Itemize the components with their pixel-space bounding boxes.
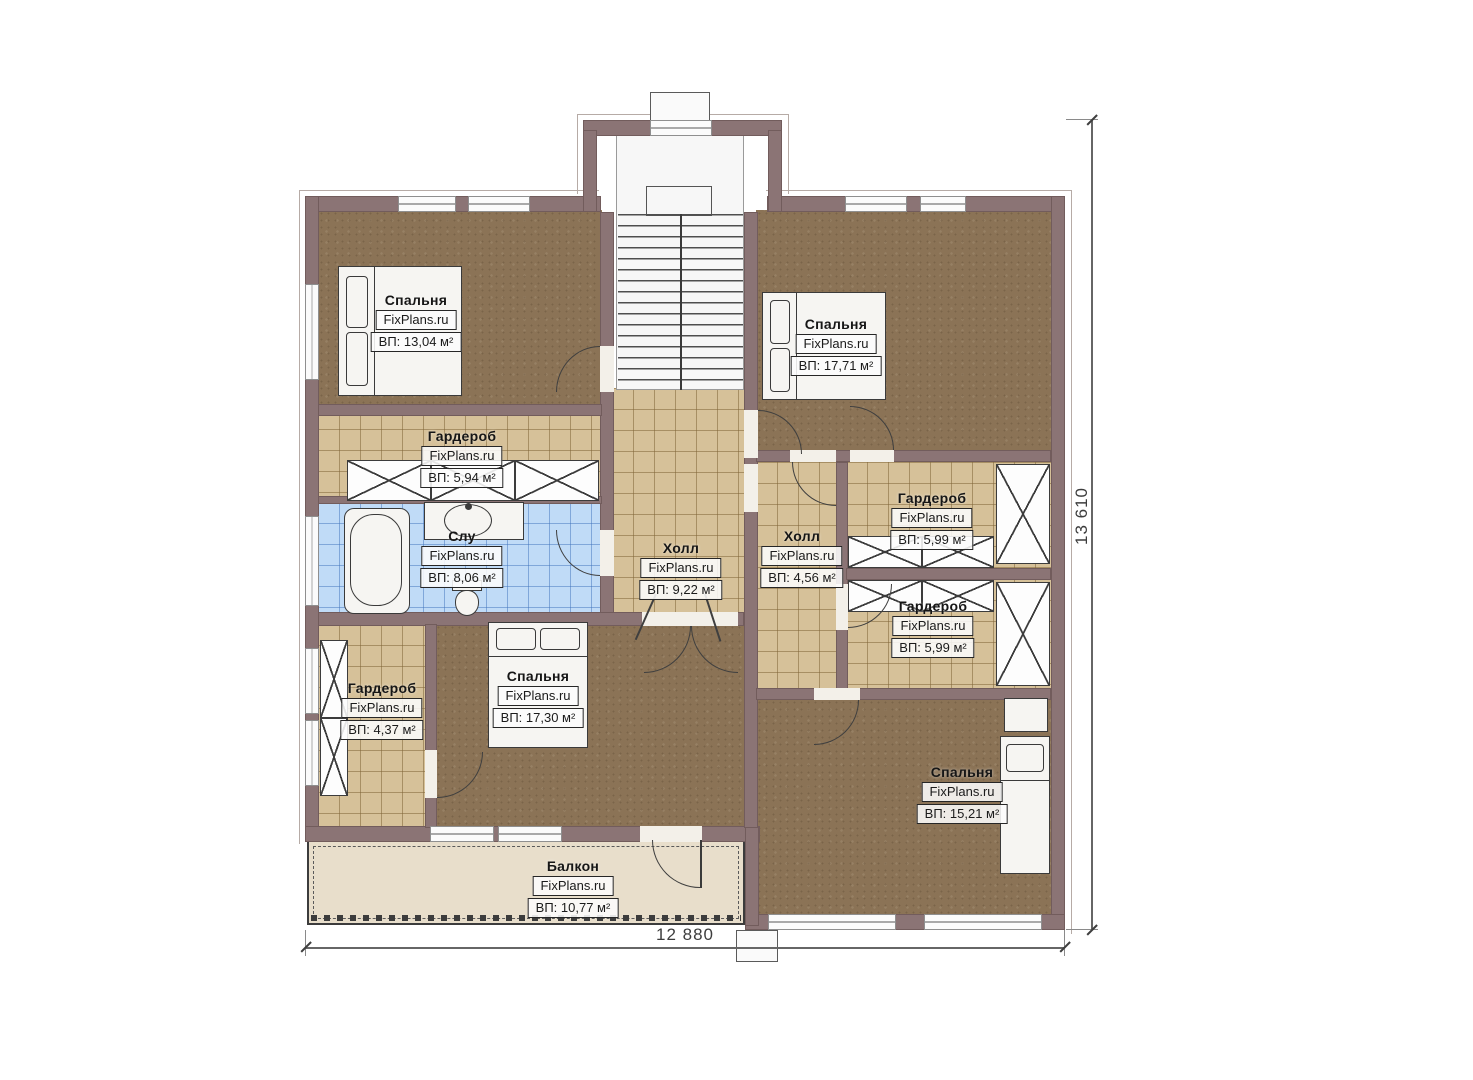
room-label-wardrobe-left: Гардероб FixPlans.ru ВП: 5,94 м²	[420, 428, 503, 488]
door-opening	[814, 688, 860, 700]
stair-treads-right	[682, 214, 743, 390]
brand-watermark: FixPlans.ru	[891, 508, 972, 528]
dimension-label-bottom: 12 880	[305, 925, 1065, 945]
room-name: Балкон	[547, 858, 599, 874]
wall	[767, 196, 1065, 212]
door-opening	[600, 346, 614, 392]
room-area: ВП: 5,94 м²	[420, 468, 503, 488]
closet	[996, 464, 1050, 564]
brand-watermark: FixPlans.ru	[892, 616, 973, 636]
wall	[846, 568, 1051, 580]
room-bedroom-bottom-center-floor	[435, 624, 746, 828]
closet	[347, 460, 431, 501]
room-area: ВП: 13,04 м²	[371, 332, 462, 352]
room-label-bedroom-top-left: Спальня FixPlans.ru ВП: 13,04 м²	[371, 292, 462, 352]
window	[920, 196, 966, 212]
window	[498, 826, 562, 842]
room-label-balcony: Балкон FixPlans.ru ВП: 10,77 м²	[528, 858, 619, 918]
sink-faucet	[465, 503, 472, 510]
room-label-hall-center: Холл FixPlans.ru ВП: 9,22 м²	[639, 540, 722, 600]
window	[305, 720, 319, 786]
dimension-label-right: 13 610	[1072, 476, 1092, 556]
room-label-wardrobe-right-lower: Гардероб FixPlans.ru ВП: 5,99 м²	[891, 598, 974, 658]
door-leaf	[700, 840, 702, 888]
room-name: Гардероб	[428, 428, 497, 444]
brand-watermark: FixPlans.ru	[532, 876, 613, 896]
window	[468, 196, 530, 212]
room-name: Спальня	[385, 292, 448, 308]
brand-watermark: FixPlans.ru	[341, 698, 422, 718]
window	[398, 196, 456, 212]
stair-landing	[646, 186, 712, 216]
room-name: Холл	[663, 540, 699, 556]
room-area: ВП: 5,99 м²	[891, 638, 974, 658]
roof-outline	[788, 114, 789, 194]
room-area: ВП: 17,30 м²	[493, 708, 584, 728]
door-opening	[744, 410, 758, 458]
nightstand	[1004, 698, 1048, 732]
door-opening	[744, 464, 758, 512]
brand-watermark: FixPlans.ru	[375, 310, 456, 330]
brand-watermark: FixPlans.ru	[795, 334, 876, 354]
wall	[768, 130, 782, 212]
room-label-bathroom: Слу FixPlans.ru ВП: 8,06 м²	[420, 528, 503, 588]
window	[650, 120, 712, 136]
bed-line	[1000, 780, 1050, 781]
bathtub	[344, 508, 410, 614]
wall	[1051, 196, 1065, 930]
room-label-bedroom-top-right: Спальня FixPlans.ru ВП: 17,71 м²	[791, 316, 882, 376]
room-name: Слу	[448, 528, 476, 544]
pillow	[496, 628, 536, 650]
room-area: ВП: 17,71 м²	[791, 356, 882, 376]
roof-outline	[577, 114, 578, 194]
dimension-line-bottom	[305, 947, 1065, 949]
floor-plan: Спальня FixPlans.ru ВП: 13,04 м² Гардеро…	[0, 0, 1473, 1080]
roof-outline	[299, 190, 300, 844]
room-label-bedroom-bottom-center: Спальня FixPlans.ru ВП: 17,30 м²	[493, 668, 584, 728]
pillow	[346, 276, 368, 328]
chimney	[650, 92, 710, 122]
window	[845, 196, 907, 212]
toilet-bowl	[455, 590, 479, 616]
bed-line	[488, 656, 588, 657]
room-area: ВП: 4,37 м²	[340, 720, 423, 740]
room-area: ВП: 8,06 м²	[420, 568, 503, 588]
room-name: Спальня	[805, 316, 868, 332]
brand-watermark: FixPlans.ru	[640, 558, 721, 578]
balcony-railing	[311, 915, 741, 921]
bathtub-inner	[350, 514, 402, 606]
closet	[996, 582, 1050, 686]
door-opening	[836, 584, 848, 630]
brand-watermark: FixPlans.ru	[921, 782, 1002, 802]
door-opening	[850, 450, 894, 462]
room-name: Спальня	[931, 764, 994, 780]
wall	[744, 212, 758, 828]
roof-outline	[1071, 190, 1072, 934]
room-name: Гардероб	[899, 598, 968, 614]
room-area: ВП: 5,99 м²	[890, 530, 973, 550]
closet	[515, 460, 599, 501]
window	[305, 284, 319, 380]
roof-outline	[299, 190, 599, 191]
brand-watermark: FixPlans.ru	[421, 546, 502, 566]
room-area: ВП: 4,56 м²	[760, 568, 843, 588]
room-name: Гардероб	[898, 490, 967, 506]
room-label-hall-right: Холл FixPlans.ru ВП: 4,56 м²	[760, 528, 843, 588]
pillow	[540, 628, 580, 650]
stair-divider	[680, 214, 682, 390]
wall	[745, 826, 759, 926]
room-name: Гардероб	[348, 680, 417, 696]
wall	[318, 404, 602, 416]
door-opening	[600, 530, 614, 576]
pillow	[770, 300, 790, 344]
room-label-wardrobe-bottom-left: Гардероб FixPlans.ru ВП: 4,37 м²	[340, 680, 423, 740]
brand-watermark: FixPlans.ru	[421, 446, 502, 466]
room-name: Спальня	[507, 668, 570, 684]
door-opening	[425, 750, 437, 798]
room-label-wardrobe-right-upper: Гардероб FixPlans.ru ВП: 5,99 м²	[890, 490, 973, 550]
roof-outline	[766, 190, 1071, 191]
room-area: ВП: 10,77 м²	[528, 898, 619, 918]
window	[305, 516, 319, 606]
window	[305, 648, 319, 714]
brand-watermark: FixPlans.ru	[497, 686, 578, 706]
room-area: ВП: 9,22 м²	[639, 580, 722, 600]
pillow	[1006, 744, 1044, 772]
pillow	[770, 348, 790, 392]
room-name: Холл	[784, 528, 820, 544]
wall	[583, 130, 597, 212]
stair-treads-left	[618, 214, 680, 390]
room-label-bedroom-bottom-right: Спальня FixPlans.ru ВП: 15,21 м²	[917, 764, 1008, 824]
brand-watermark: FixPlans.ru	[761, 546, 842, 566]
window	[430, 826, 494, 842]
door-opening	[642, 612, 738, 626]
room-area: ВП: 15,21 м²	[917, 804, 1008, 824]
pillow	[346, 332, 368, 386]
